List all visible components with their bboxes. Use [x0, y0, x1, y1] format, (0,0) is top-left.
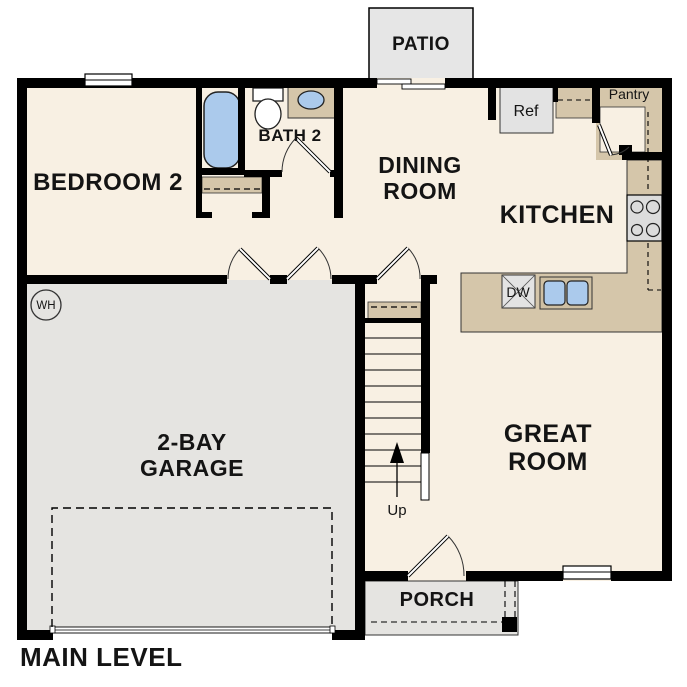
water-heater-label: WH	[36, 300, 55, 312]
wall	[196, 212, 212, 218]
kitchen-label: KITCHEN	[500, 201, 615, 229]
wall	[662, 78, 672, 581]
porch-label: PORCH	[400, 589, 475, 611]
garage-door-end	[50, 626, 55, 633]
garage-door-end	[330, 626, 335, 633]
garage-label: 2-BAY	[157, 429, 226, 455]
wall	[466, 571, 563, 581]
stair-closet-shelf	[368, 302, 421, 319]
bath2-label: BATH 2	[258, 126, 321, 145]
bathroom-sink-icon	[298, 91, 324, 109]
wall	[334, 88, 343, 218]
wall	[238, 88, 245, 172]
dining-room-label: DINING	[378, 152, 462, 178]
wall	[611, 571, 672, 581]
wall	[17, 275, 227, 284]
patio-label: PATIO	[392, 34, 450, 55]
wall	[553, 88, 558, 102]
wall	[262, 170, 270, 218]
wall	[270, 275, 287, 284]
wall	[365, 275, 377, 284]
refrigerator-label: Ref	[514, 103, 539, 120]
dining-room-label2: ROOM	[383, 178, 457, 204]
stair-handrail	[421, 453, 429, 500]
great-room-label: GREAT	[504, 420, 592, 448]
kitchen-sink-basin-icon	[544, 281, 565, 305]
wall	[355, 277, 365, 640]
pantry-label: Pantry	[609, 86, 649, 102]
wall	[622, 152, 662, 160]
wall	[252, 212, 270, 218]
wall	[421, 275, 430, 453]
sliding-door-panel	[377, 79, 411, 84]
dishwasher-label: DW	[506, 284, 530, 300]
wall	[196, 168, 244, 175]
wall	[17, 630, 53, 640]
sliding-door-panel	[402, 84, 445, 89]
wall	[488, 88, 496, 120]
garage-label2: GARAGE	[140, 455, 244, 481]
stairs-up-label: Up	[387, 502, 406, 519]
great-room-label2: ROOM	[508, 448, 588, 476]
wall	[332, 275, 365, 284]
wall	[17, 78, 377, 88]
closet-shelf	[202, 177, 262, 193]
bedroom2-label: BEDROOM 2	[33, 169, 183, 196]
plan-title: MAIN LEVEL	[20, 642, 182, 672]
wall	[365, 318, 421, 323]
wall	[592, 88, 600, 123]
kitchen-counter-upper	[556, 86, 593, 118]
kitchen-sink-basin-icon	[567, 281, 588, 305]
wall	[17, 78, 27, 640]
porch-post	[502, 617, 517, 632]
floor-plan: BEDROOM 2 BATH 2 DINING ROOM KITCHEN GRE…	[0, 0, 687, 687]
wall	[196, 168, 202, 218]
toilet-bowl-icon	[255, 99, 281, 129]
wall	[196, 88, 202, 175]
bathtub-icon	[204, 92, 240, 168]
